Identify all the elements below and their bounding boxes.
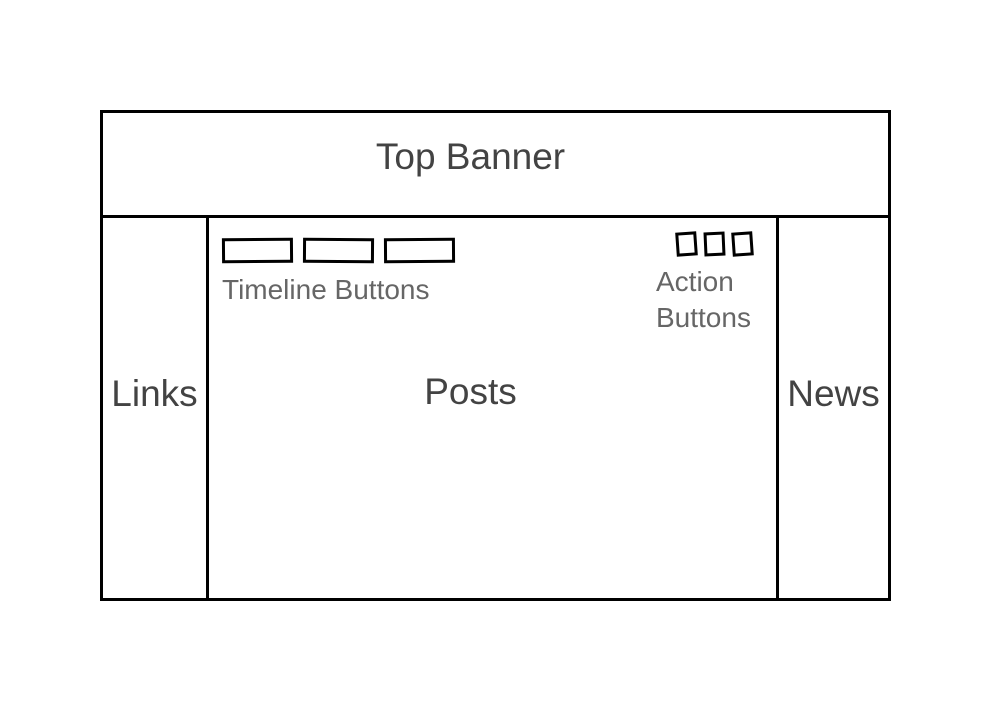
action-button-3[interactable] [731, 231, 754, 256]
timeline-button-1[interactable] [222, 238, 293, 264]
top-banner-label: Top Banner [376, 138, 565, 175]
news-label: News [787, 375, 880, 412]
action-buttons-caption: Action Buttons [656, 264, 753, 336]
wireframe-frame: Top Banner Links Timeline Buttons [100, 110, 891, 601]
action-button-2[interactable] [703, 232, 725, 257]
content-columns: Links Timeline Buttons Action [103, 218, 888, 598]
timeline-buttons-row [222, 238, 455, 263]
top-banner: Top Banner [103, 113, 888, 218]
action-button-1[interactable] [675, 231, 698, 256]
timeline-button-2[interactable] [303, 238, 374, 263]
action-buttons-row [676, 232, 753, 256]
timeline-buttons-caption: Timeline Buttons [222, 272, 455, 308]
timeline-buttons-group: Timeline Buttons [222, 238, 455, 308]
posts-area: Timeline Buttons Action Buttons Posts [209, 218, 776, 598]
action-buttons-caption-line2: Buttons [656, 300, 753, 336]
links-label: Links [111, 375, 197, 412]
news-sidebar: News [776, 218, 888, 598]
posts-label: Posts [187, 373, 754, 410]
action-buttons-group: Action Buttons [656, 232, 753, 336]
action-buttons-caption-line1: Action [656, 264, 753, 300]
timeline-button-3[interactable] [384, 238, 455, 263]
